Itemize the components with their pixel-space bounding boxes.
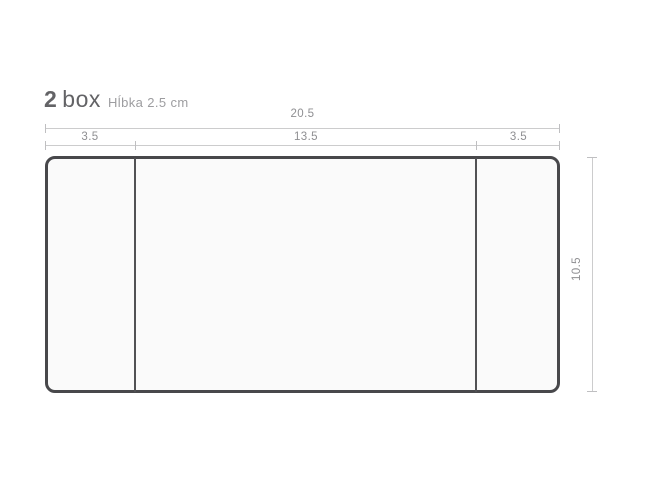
box-divider-right — [475, 158, 477, 392]
dimension-tick — [135, 141, 136, 150]
dimension-label-segment-right: 3.5 — [477, 131, 560, 143]
dimension-label-height: 10.5 — [571, 249, 583, 289]
dimension-tick — [587, 391, 597, 392]
dimension-tick — [587, 157, 597, 158]
dimension-line-segments — [45, 145, 560, 146]
dimension-label-segment-left: 3.5 — [45, 131, 135, 143]
dimension-line-height — [592, 157, 593, 392]
dimension-tick — [559, 141, 560, 150]
dimension-line-total-width — [45, 128, 560, 129]
dimension-tick — [45, 141, 46, 150]
dimension-label-total-width: 20.5 — [45, 108, 560, 120]
diagram-canvas: 2box Hĺbka 2.5 cm 20.5 3.5 13.5 3.5 10.5 — [0, 0, 648, 501]
dimension-tick — [476, 141, 477, 150]
box-divider-left — [134, 158, 136, 392]
box-outline — [45, 156, 560, 393]
dimension-label-segment-middle: 13.5 — [135, 131, 477, 143]
